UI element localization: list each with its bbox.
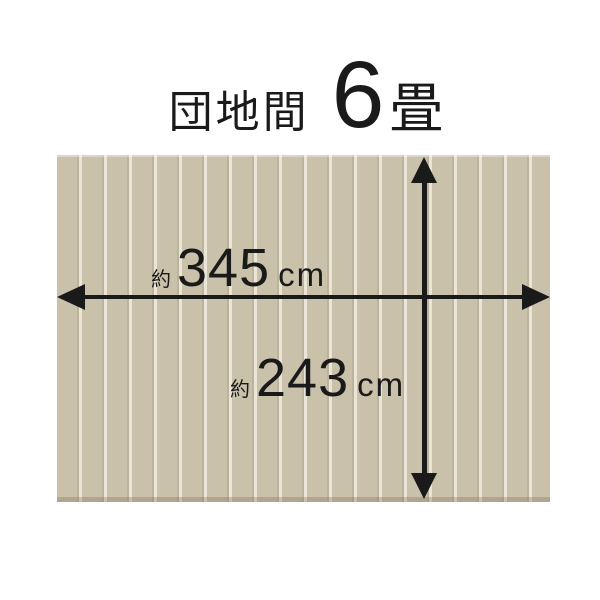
height-value: 243 <box>256 348 349 408</box>
product-size-diagram: 団地間6畳 約345cm 約243cm <box>0 0 600 600</box>
flooring-panel-image <box>57 155 550 502</box>
height-approx-prefix: 約 <box>230 379 250 401</box>
width-value: 345 <box>177 238 270 298</box>
arrowhead-down-icon <box>411 473 437 499</box>
height-arrow-line <box>422 178 427 476</box>
height-unit: cm <box>357 366 405 403</box>
title-tatami-unit: 畳 <box>389 79 443 139</box>
width-dimension-label: 約345cm <box>151 241 326 295</box>
width-arrow-line <box>70 295 530 299</box>
height-dimension-label: 約243cm <box>230 351 405 405</box>
arrowhead-right-icon <box>522 284 550 310</box>
arrowhead-up-icon <box>411 157 437 183</box>
title-tatami-count: 6 <box>332 42 385 148</box>
width-unit: cm <box>278 256 326 293</box>
page-title: 団地間6畳 <box>6 48 600 143</box>
width-approx-prefix: 約 <box>151 269 171 291</box>
arrowhead-left-icon <box>57 284 85 310</box>
title-room-type: 団地間 <box>169 88 310 137</box>
